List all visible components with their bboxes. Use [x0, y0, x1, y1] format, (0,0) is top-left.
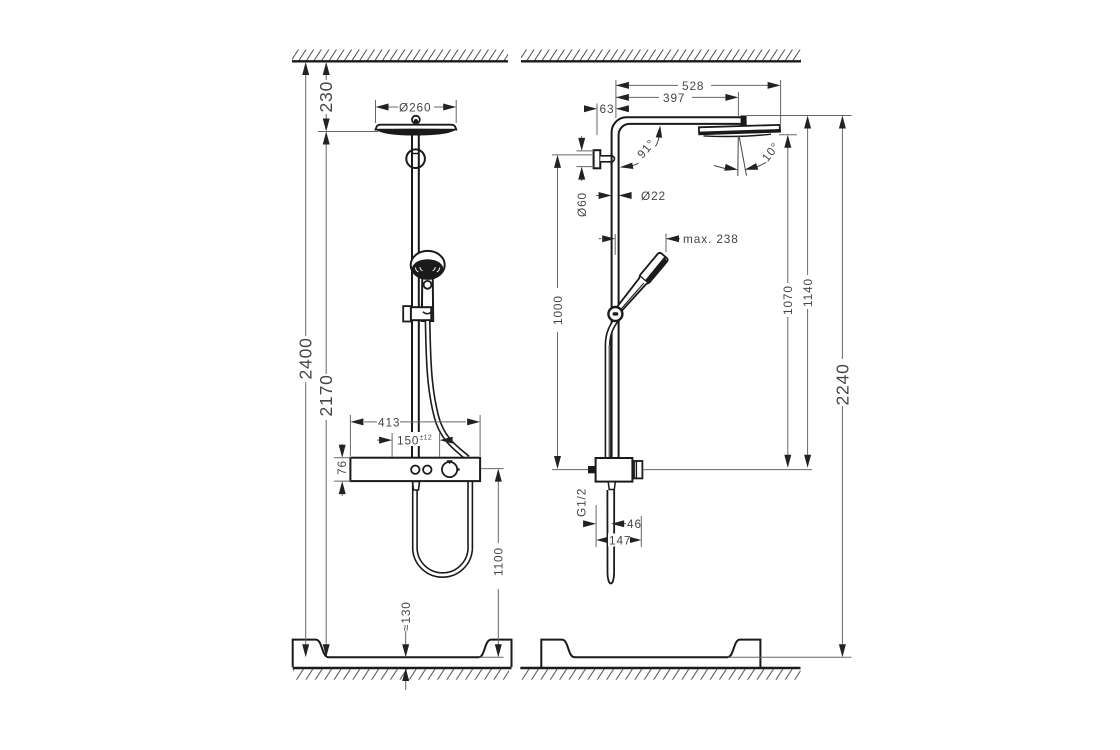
svg-text:46: 46 — [627, 517, 642, 531]
svg-text:Ø60: Ø60 — [575, 192, 589, 217]
svg-text:147: 147 — [609, 533, 631, 547]
svg-text:413: 413 — [378, 415, 400, 429]
svg-text:150: 150 — [397, 434, 419, 448]
svg-text:1140: 1140 — [801, 278, 815, 307]
svg-text:2400: 2400 — [296, 337, 316, 379]
svg-text:76: 76 — [335, 460, 349, 475]
svg-text:±12: ±12 — [420, 435, 433, 442]
svg-text:≈130: ≈130 — [399, 601, 413, 631]
svg-text:G1/2: G1/2 — [575, 488, 589, 517]
svg-text:1070: 1070 — [781, 285, 795, 315]
svg-text:2170: 2170 — [316, 374, 336, 416]
svg-text:max. 238: max. 238 — [683, 232, 739, 246]
svg-text:2240: 2240 — [832, 363, 852, 405]
svg-text:Ø22: Ø22 — [641, 189, 666, 203]
svg-text:230: 230 — [316, 81, 336, 113]
svg-text:1000: 1000 — [551, 295, 565, 325]
svg-text:397: 397 — [663, 91, 685, 105]
svg-text:1100: 1100 — [492, 547, 506, 576]
svg-text:63: 63 — [600, 102, 615, 116]
svg-text:Ø260: Ø260 — [399, 101, 431, 115]
